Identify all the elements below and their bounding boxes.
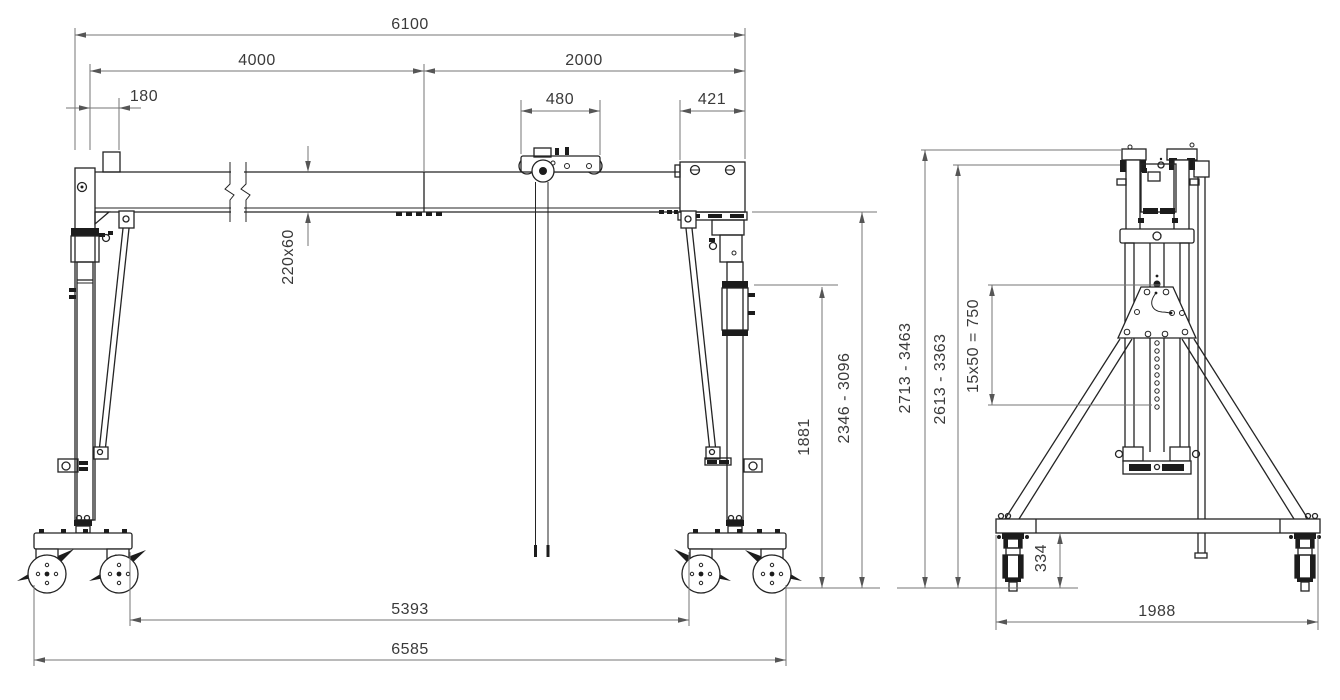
dim-label-trolley-width: 480 [546, 91, 574, 108]
dim-label-beam-height-range: 2613 - 3363 [932, 334, 949, 425]
dim-label-clearance-height: 1881 [796, 418, 813, 456]
gantry-crane-drawing: 6100 4000 2000 180 480 421 220x60 1881 2… [0, 0, 1340, 700]
column-winch [1116, 447, 1200, 474]
caster-wheel [17, 549, 74, 593]
dim-trolley-width [521, 100, 600, 155]
dim-end-offset [66, 98, 141, 150]
main-beam [95, 152, 745, 222]
dim-label-caster-height: 334 [1033, 544, 1050, 572]
dim-label-base-track-width: 1988 [1138, 603, 1176, 620]
dim-beam-section [305, 146, 311, 246]
left-column [58, 168, 134, 533]
dim-label-inner-wheelbase: 5393 [391, 601, 429, 618]
dim-underbeam-height [752, 212, 880, 588]
technical-drawing-page: 6100 4000 2000 180 480 421 220x60 1881 2… [0, 0, 1340, 700]
dim-label-beam-section: 220x60 [280, 229, 297, 285]
dim-label-main-span: 4000 [238, 52, 276, 69]
right-column [675, 162, 762, 533]
beam-end-stop [103, 152, 120, 172]
side-top-clamp [1117, 143, 1199, 230]
dim-caster-height [1057, 533, 1063, 588]
dim-overall-span [75, 28, 745, 159]
dim-support-width [680, 100, 745, 160]
dim-label-overall-height-range: 2713 - 3463 [897, 323, 914, 414]
caster-wheel [89, 549, 146, 593]
beam-clamp [680, 162, 745, 212]
beam-break-gap [231, 160, 244, 222]
adjustment-holes [1155, 341, 1159, 409]
caster-wheel [745, 549, 802, 593]
left-base [17, 529, 146, 593]
right-brace [681, 211, 731, 465]
dim-cantilever-span [424, 68, 745, 74]
dim-label-overall-span: 6100 [391, 16, 429, 33]
dim-label-end-offset: 180 [130, 88, 158, 105]
beam-rack-teeth [396, 210, 678, 216]
dim-label-height-adjustment: 15x50 = 750 [965, 299, 982, 393]
left-brace [94, 211, 134, 459]
hoist-ropes [536, 182, 549, 557]
dim-label-overall-length: 6585 [391, 641, 429, 658]
front-view-structure [17, 147, 802, 593]
right-base [674, 529, 802, 593]
dim-label-support-width: 421 [698, 91, 726, 108]
caster-front-face [997, 533, 1029, 591]
caster-wheel [674, 549, 731, 593]
gusset-plate [1118, 287, 1196, 338]
dim-label-underbeam-height: 2346 - 3096 [836, 353, 853, 444]
side-view-structure [996, 143, 1321, 591]
dim-main-span [90, 64, 424, 171]
caster-front-face [1289, 533, 1321, 591]
dim-label-cantilever-span: 2000 [565, 52, 603, 69]
a-frame-legs [1005, 339, 1308, 519]
